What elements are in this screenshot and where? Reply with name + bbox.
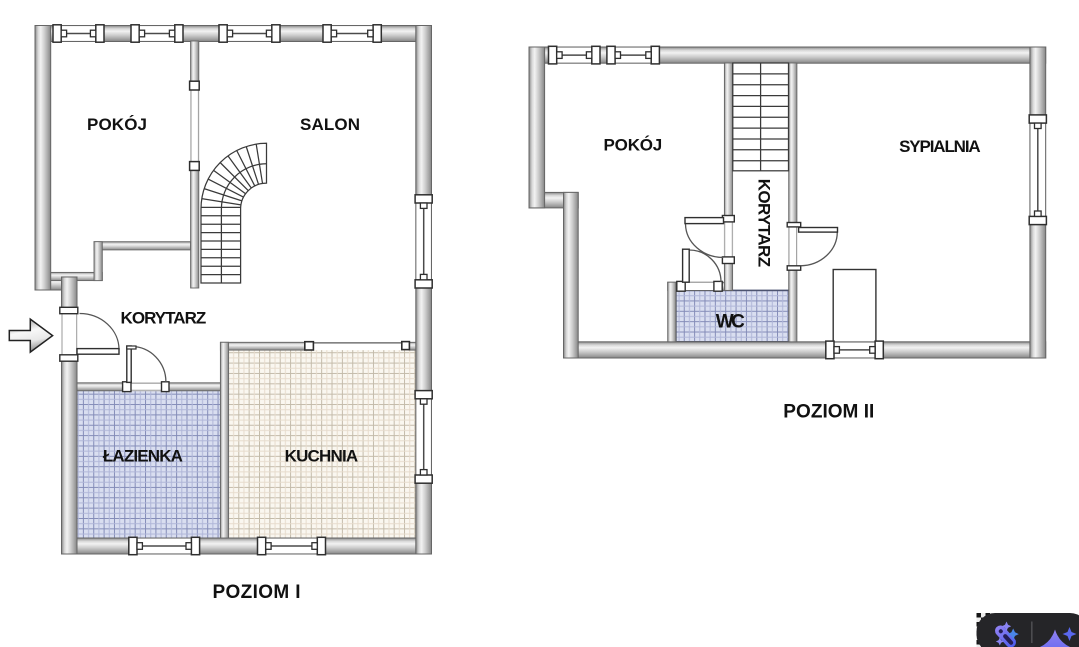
svg-text:WC: WC (716, 311, 745, 332)
svg-text:KORYTARZ: KORYTARZ (121, 308, 207, 327)
svg-text:POZIOM II: POZIOM II (783, 401, 874, 422)
svg-text:POKÓJ: POKÓJ (87, 115, 147, 134)
svg-text:KUCHNIA: KUCHNIA (285, 447, 359, 466)
svg-text:SYPIALNIA: SYPIALNIA (899, 137, 981, 156)
svg-text:ŁAZIENKA: ŁAZIENKA (103, 447, 183, 466)
svg-text:KORYTARZ: KORYTARZ (755, 179, 774, 267)
svg-text:POZIOM I: POZIOM I (213, 582, 301, 603)
svg-text:SALON: SALON (300, 115, 360, 134)
svg-text:POKÓJ: POKÓJ (604, 136, 663, 155)
